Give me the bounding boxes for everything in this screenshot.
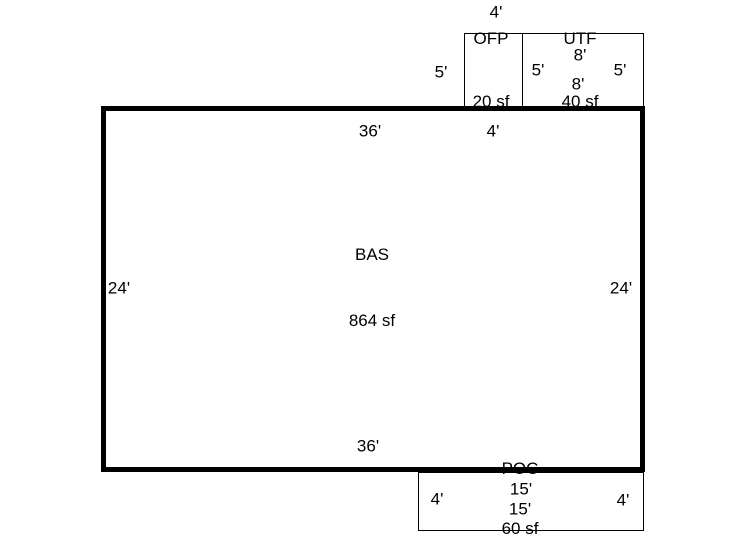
dim-ofp-bottom: 4' [487,121,500,142]
poc-area-size: 60 sf [502,519,539,539]
bas-area-size: 864 sf [349,310,395,332]
utf-area-label: UTF 40 sf [562,0,599,154]
ofp-area-code: OFP [473,28,510,49]
poc-area-code: POC [502,459,539,479]
dim-ofp-left: 5' [435,62,448,83]
dim-utf-left: 5' [532,60,545,81]
utf-area-code: UTF [562,28,599,49]
dim-poc-bottom: 15' [509,499,531,520]
dim-bas-left: 24' [108,278,130,299]
dim-utf-right: 5' [614,60,627,81]
dim-poc-top: 15' [510,479,532,500]
dim-poc-left: 4' [431,489,444,510]
floorplan-sketch: 4' 5' 5' 8' 8' 5' OFP 20 sf UTF 40 sf 36… [0,0,746,547]
bas-area-code: BAS [349,244,395,266]
dim-poc-right: 4' [617,490,630,511]
bas-area-label: BAS 864 sf [349,200,395,376]
dim-bas-top: 36' [359,121,381,142]
ofp-area-size: 20 sf [473,91,510,112]
utf-area-size: 40 sf [562,91,599,112]
dim-bas-bottom: 36' [357,436,379,457]
dim-bas-right: 24' [610,278,632,299]
